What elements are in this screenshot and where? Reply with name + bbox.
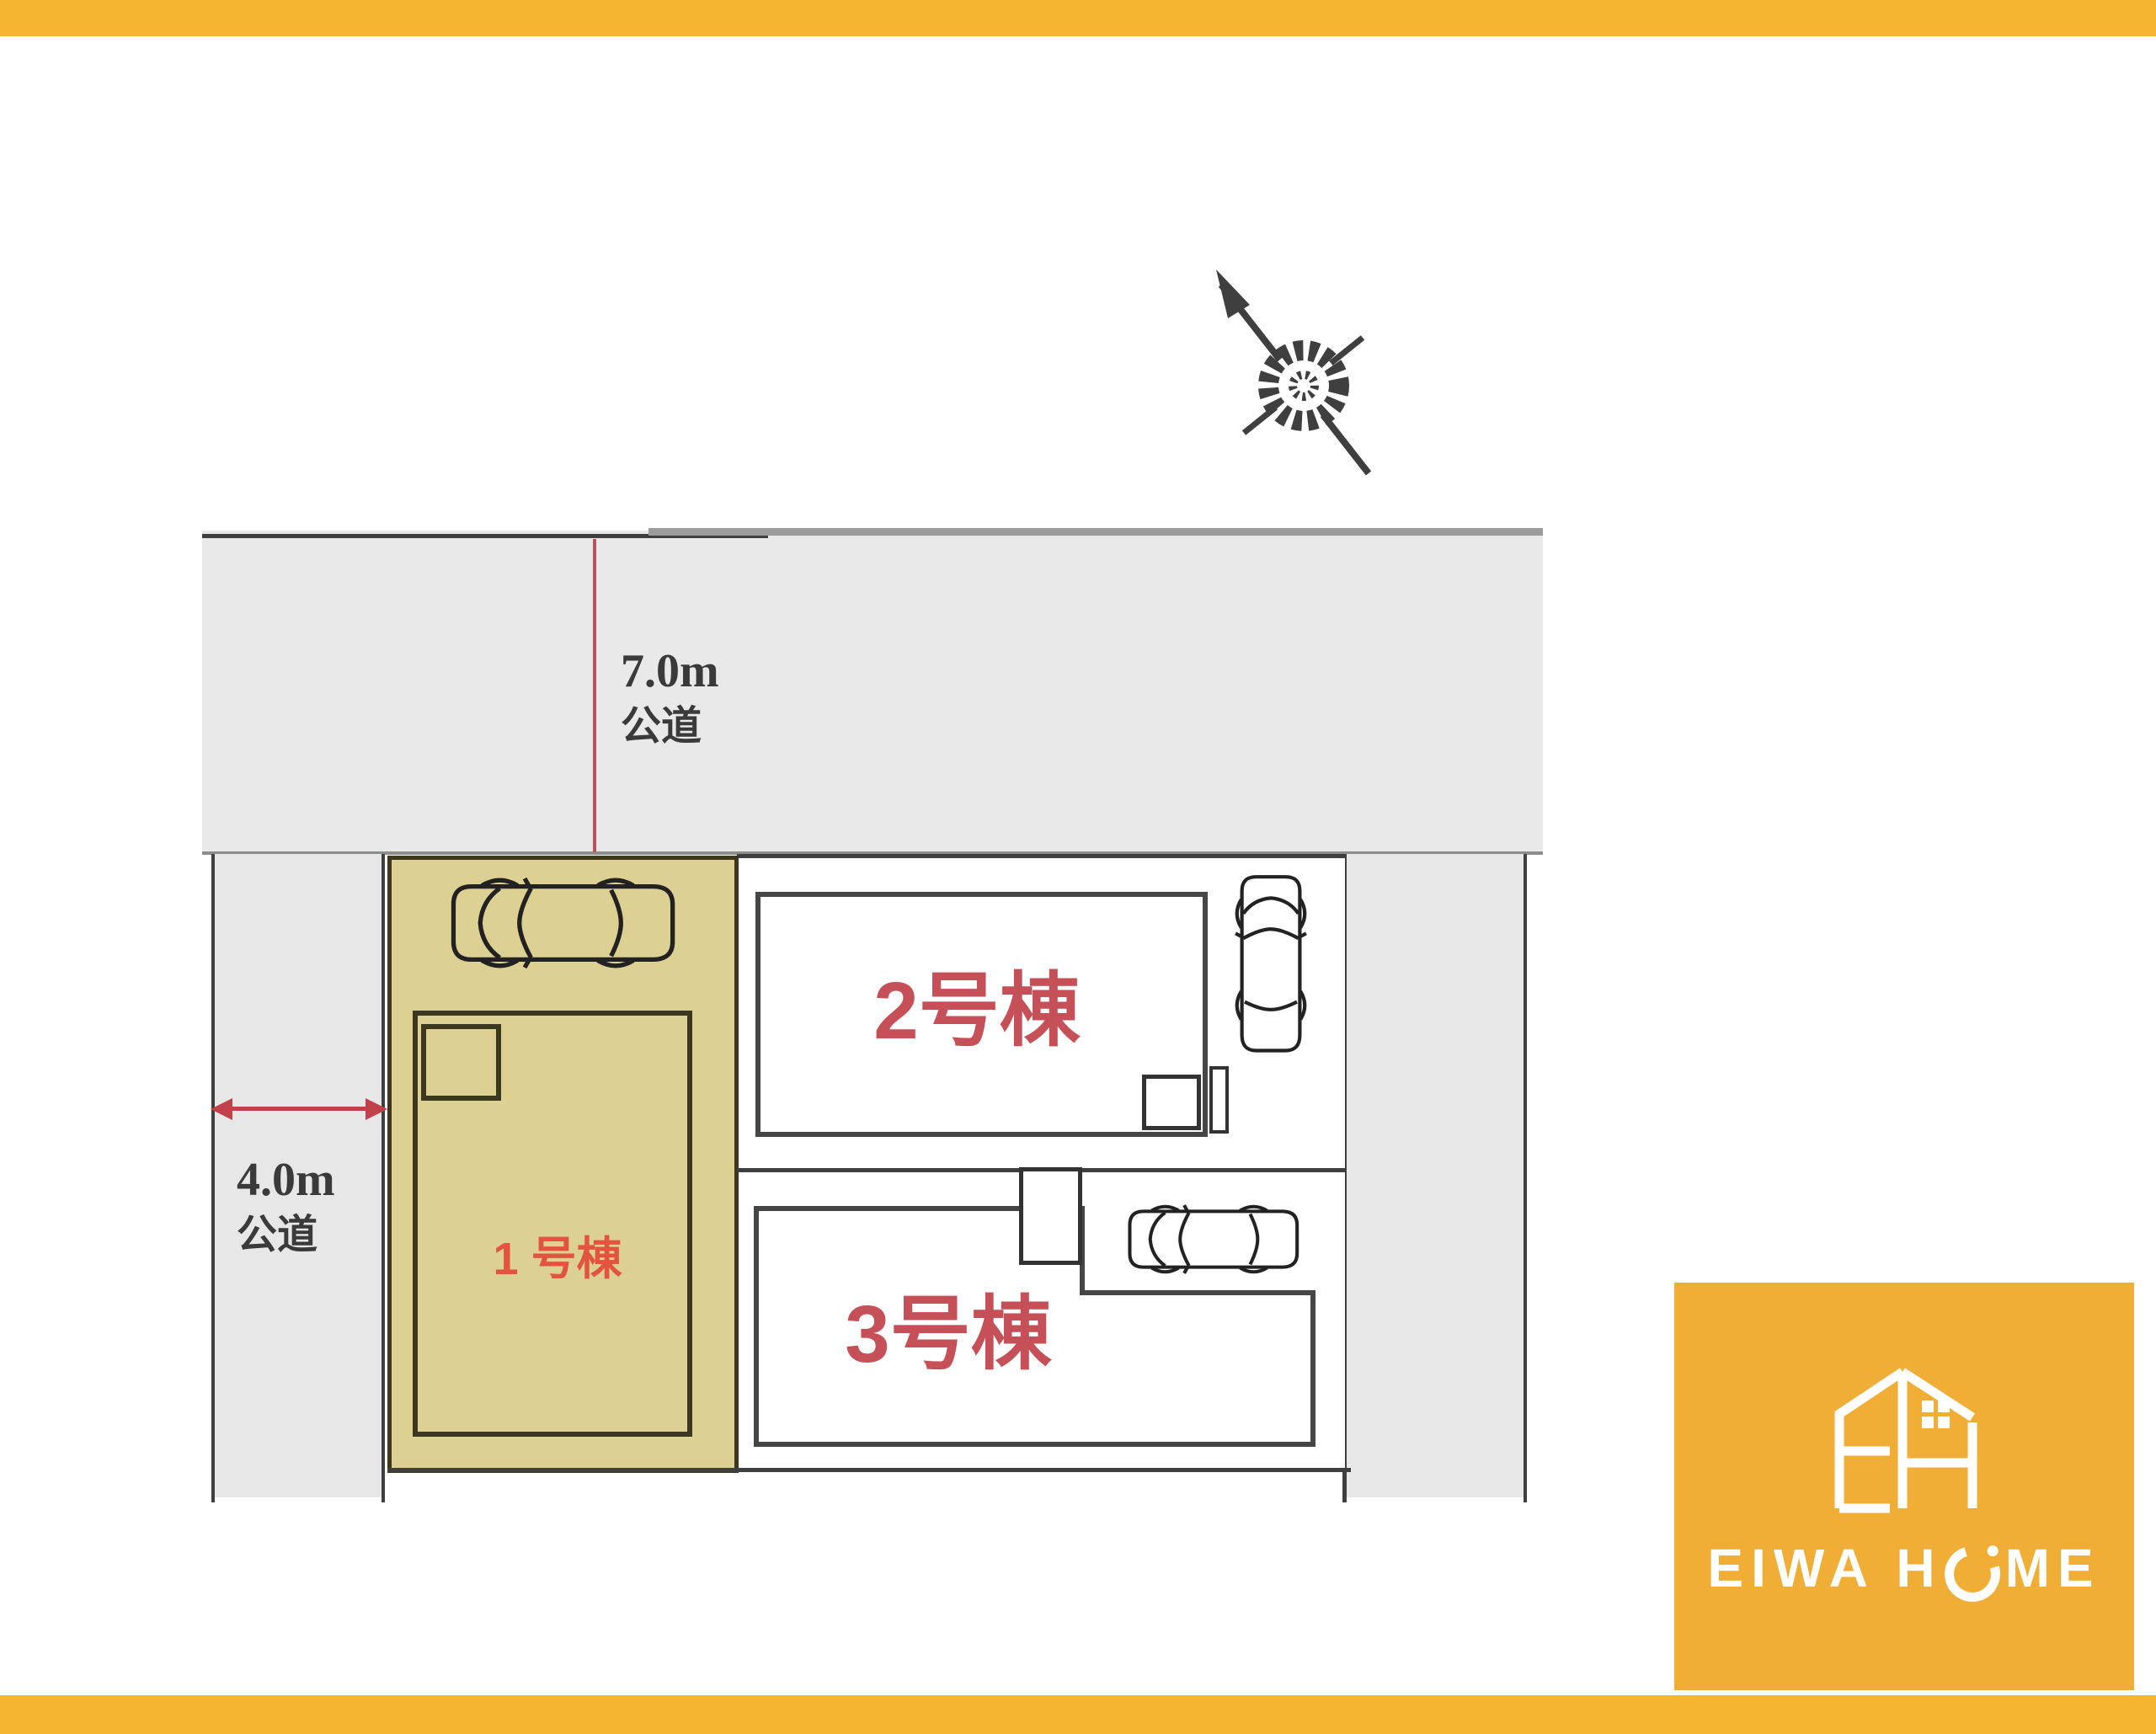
car-icon-lot3	[1124, 1196, 1301, 1283]
eiwa-home-wordmark: EIWA HME	[1674, 1537, 2134, 1599]
road-right-edge	[382, 854, 385, 1502]
road-4m-width: 4.0m	[237, 1150, 335, 1209]
right-gray-strip	[1345, 854, 1527, 1497]
right-strip-edge	[1524, 854, 1527, 1502]
road-7m-type: 公道	[621, 701, 719, 753]
eiwa-home-logo: EIWA HME	[1674, 1283, 2134, 1690]
house-2-porch-step	[1209, 1066, 1229, 1134]
dimension-arrow-left-icon	[211, 1098, 232, 1120]
house-2-porch	[1142, 1075, 1201, 1130]
house-3-porch	[1019, 1167, 1082, 1265]
top-brand-bar	[0, 0, 2156, 36]
lot-2-label: 2号棟	[808, 945, 1145, 1062]
road-7m-width: 7.0m	[621, 642, 719, 701]
logo-text-right: ME	[2005, 1537, 2101, 1599]
road-horizontal-7m	[202, 531, 1543, 854]
lot-1-label: 1 号棟	[452, 1221, 663, 1288]
parcel-top-boundary	[737, 854, 1345, 858]
road-label-7m: 7.0m 公道	[621, 642, 719, 753]
road-top-edge-gray	[648, 528, 1543, 536]
road-4m-type: 公道	[237, 1209, 335, 1262]
north-arrow-icon	[1179, 244, 1415, 522]
dimension-line-7m	[593, 539, 596, 852]
parcel-bottom-boundary	[387, 1468, 1351, 1472]
car-icon-lot1	[446, 873, 678, 973]
site-plan-page: 7.0m 公道 4.0m 公道 1 号棟 2号棟 3号棟	[0, 0, 2156, 1734]
bottom-brand-bar	[0, 1695, 2156, 1734]
dimension-line-4m	[217, 1107, 382, 1111]
logo-text-left: EIWA H	[1707, 1537, 1942, 1599]
road-label-4m: 4.0m 公道	[237, 1150, 335, 1262]
eiwa-home-house-icon	[1816, 1363, 1984, 1517]
car-icon-lot2	[1230, 872, 1313, 1055]
lot-3-label: 3号棟	[780, 1268, 1117, 1385]
house-1-porch	[421, 1024, 501, 1101]
dimension-arrow-right-icon	[366, 1098, 387, 1120]
logo-stylized-o-icon	[1935, 1536, 2009, 1611]
road-left-edge	[211, 854, 215, 1502]
